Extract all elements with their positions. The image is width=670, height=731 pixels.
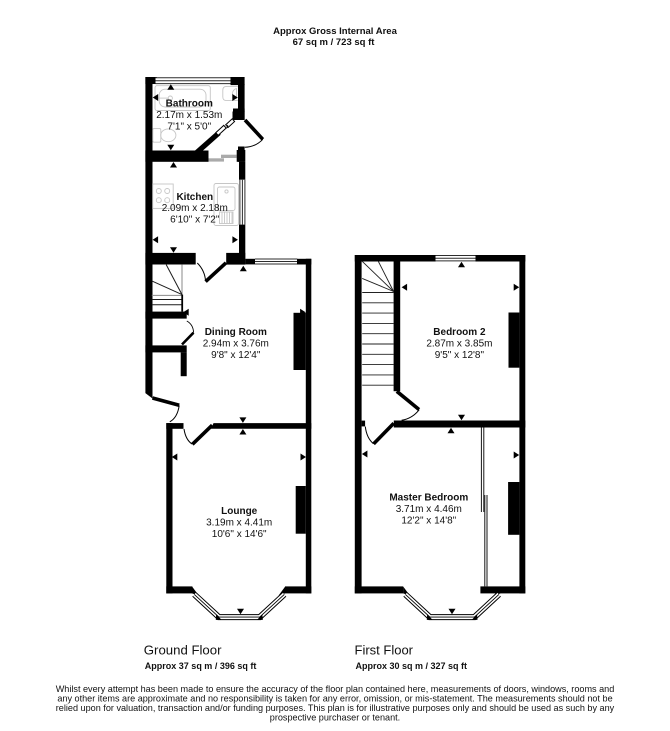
svg-text:Bedroom 2: Bedroom 2 xyxy=(433,327,486,338)
svg-text:3.71m x 4.46m: 3.71m x 4.46m xyxy=(396,504,462,515)
svg-text:2.17m x 1.53m: 2.17m x 1.53m xyxy=(156,110,222,121)
svg-text:any other items are approximat: any other items are approximate and no r… xyxy=(57,693,612,703)
svg-text:2.94m x 3.76m: 2.94m x 3.76m xyxy=(203,339,269,350)
svg-text:9'8" x 12'4": 9'8" x 12'4" xyxy=(211,350,261,361)
svg-text:Bathroom: Bathroom xyxy=(166,98,213,109)
svg-text:9'5" x 12'8": 9'5" x 12'8" xyxy=(435,350,485,361)
svg-text:10'6" x 14'6": 10'6" x 14'6" xyxy=(212,529,267,540)
svg-text:12'2" x 14'8": 12'2" x 14'8" xyxy=(401,515,456,526)
svg-text:Lounge: Lounge xyxy=(221,506,258,517)
svg-text:Approx Gross Internal Area: Approx Gross Internal Area xyxy=(273,26,397,37)
svg-text:Approx 37 sq m / 396 sq ft: Approx 37 sq m / 396 sq ft xyxy=(145,661,257,671)
svg-text:Ground Floor: Ground Floor xyxy=(144,643,222,658)
svg-text:relied upon for valuation, tra: relied upon for valuation, transaction a… xyxy=(56,703,615,713)
svg-text:prospective purchaser or tenan: prospective purchaser or tenant. xyxy=(270,712,400,722)
svg-text:3.19m x 4.41m: 3.19m x 4.41m xyxy=(206,518,272,529)
svg-text:2.09m x 2.18m: 2.09m x 2.18m xyxy=(162,203,228,214)
svg-text:First Floor: First Floor xyxy=(355,643,414,658)
svg-text:Approx 30 sq m / 327 sq ft: Approx 30 sq m / 327 sq ft xyxy=(356,661,468,671)
svg-text:Master Bedroom: Master Bedroom xyxy=(389,492,468,503)
svg-text:67 sq m / 723 sq ft: 67 sq m / 723 sq ft xyxy=(293,37,376,48)
svg-text:Kitchen: Kitchen xyxy=(176,192,213,203)
svg-text:Dining Room: Dining Room xyxy=(205,327,267,338)
svg-text:6'10" x 7'2": 6'10" x 7'2" xyxy=(170,214,220,225)
svg-text:2.87m x 3.85m: 2.87m x 3.85m xyxy=(426,339,492,350)
svg-text:7'1" x 5'0": 7'1" x 5'0" xyxy=(167,122,211,133)
svg-text:Whilst every attempt has been: Whilst every attempt has been made to en… xyxy=(56,684,615,694)
